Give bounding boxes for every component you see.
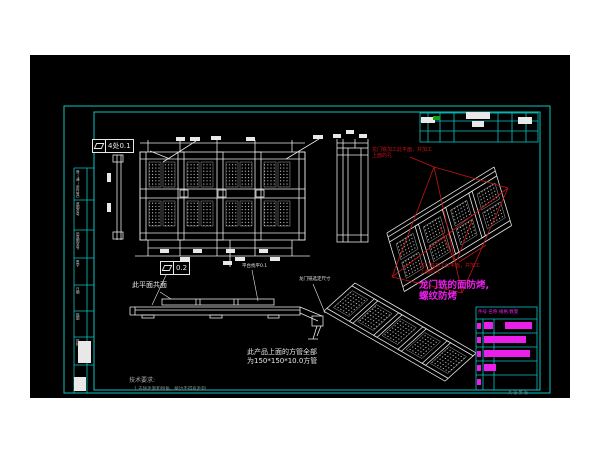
margin-strip-row: 签字	[76, 260, 80, 283]
cad-screenshot-page: 4处0.1 0.2 此平面共面 平台找平0.1 龙门铣选定尺寸 龙门铣加工此平面…	[0, 0, 600, 450]
flatness-top-value: 4处0.1	[106, 142, 133, 150]
magenta-note: 龙门铣的面防烤,螺纹防烤	[419, 281, 489, 303]
magenta-note-line2: 螺纹防烤	[419, 291, 457, 302]
tube-note: 此产品上面的方管全部为150*150*10.0方管	[247, 348, 317, 366]
tube-note-line2: 为150*150*10.0方管	[247, 357, 317, 365]
revision-table-entries	[421, 112, 532, 127]
parts-table-redactions	[477, 322, 532, 385]
margin-strip-row: 日期	[76, 287, 80, 309]
red-note-bottom: 龙门铣加工此平面，并加工上面的孔	[420, 263, 480, 275]
margin-strip-row: 描校	[76, 339, 80, 363]
coplanar-label: 此平面共面	[132, 281, 167, 289]
margin-strip-row: 旧底图总号	[76, 232, 80, 256]
plan-view-hole-panels	[149, 162, 290, 226]
cad-canvas[interactable]: 4处0.1 0.2 此平面共面 平台找平0.1 龙门铣选定尺寸 龙门铣加工此平面…	[30, 55, 570, 398]
tube-note-line1: 此产品上面的方管全部	[247, 348, 317, 356]
flatness-tolerance-top: 4处0.1	[92, 139, 134, 153]
gantry-dim-label: 龙门铣选定尺寸	[299, 277, 331, 282]
red-note-top-line2: 上面的孔	[372, 153, 392, 159]
tech-requirements-line1: 1.去除毛刺和锐角，棱边不得有毛刺	[134, 387, 206, 392]
red-note-bottom-line2: 上面的孔	[420, 269, 440, 275]
margin-strip-row: 底图总号	[76, 202, 80, 228]
cad-linework	[30, 55, 570, 398]
side-view	[337, 139, 368, 242]
flatness-icon	[93, 140, 106, 152]
flatness-icon	[161, 262, 174, 274]
margin-strip-row: 借(通)用件登记	[76, 170, 80, 198]
platform-leveling-label: 平台找平0.1	[242, 264, 267, 269]
flatness-tolerance-mid: 0.2	[160, 261, 190, 275]
red-note-top: 龙门铣加工此平面，并加工上面的孔	[372, 147, 432, 159]
magenta-note-line1: 龙门铣的面防烤,	[419, 280, 489, 291]
parts-table-grid	[476, 307, 537, 390]
tech-requirements-title: 技术要求:	[129, 377, 155, 384]
margin-strip-row: 描图	[76, 313, 80, 335]
flatness-mid-value: 0.2	[174, 264, 189, 272]
revision-green-mark	[433, 116, 440, 120]
parts-table-header: 件号 名称 规格 数量	[478, 310, 518, 315]
sheet-stamp: 共 张 第 张	[508, 391, 528, 396]
